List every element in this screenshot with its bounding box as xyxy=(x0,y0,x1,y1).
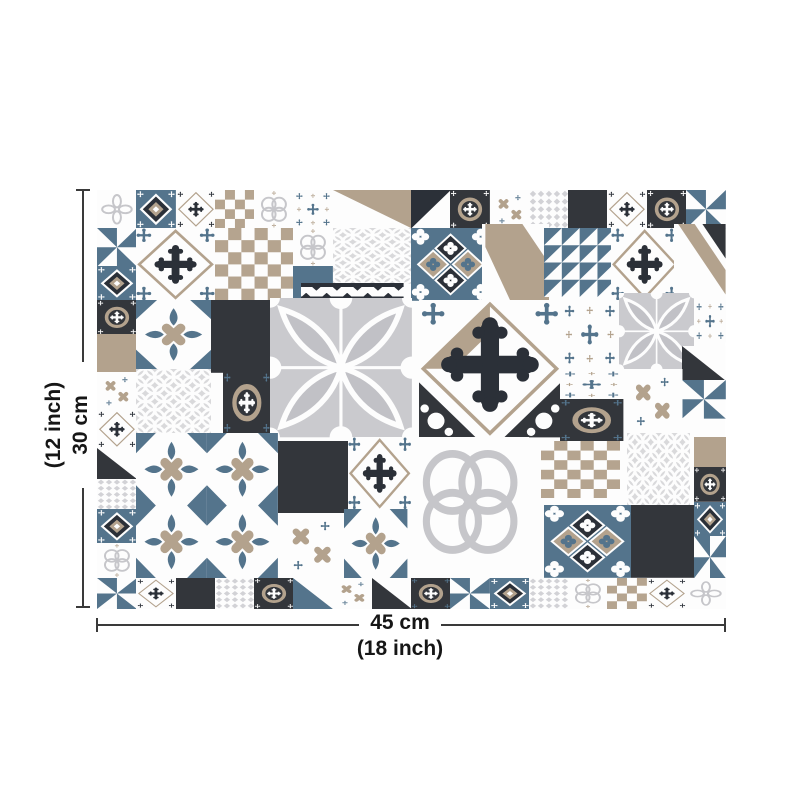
tile-pin_blue xyxy=(97,578,137,609)
tile-dnavy xyxy=(97,509,137,544)
height-label-cm: 30 cm xyxy=(69,365,93,485)
tile-dark xyxy=(568,190,608,229)
tile-ocircle2 xyxy=(560,399,623,441)
tile-tan_s xyxy=(97,334,137,373)
tile-ocircle xyxy=(694,467,726,502)
tile-dark xyxy=(211,300,271,373)
tile-xdiamond xyxy=(348,437,411,510)
width-dimension-tick-right xyxy=(724,618,726,632)
tile-tri_dark xyxy=(372,578,412,609)
tile-qring xyxy=(568,578,608,609)
tile-batons_w xyxy=(344,509,407,578)
tile-bluediamond xyxy=(411,228,490,301)
tile-tri_navy2 xyxy=(411,190,451,229)
tile-ocircle2 xyxy=(223,372,271,433)
tile-lattice2 xyxy=(136,369,211,434)
tile-pin_blue xyxy=(686,190,726,229)
tile-lattice xyxy=(529,190,569,229)
tile-qring xyxy=(293,228,333,267)
tile-tri_tan xyxy=(333,190,412,229)
width-dimension-line xyxy=(441,624,726,626)
tile-pin_blue xyxy=(97,228,137,267)
tile-crosses xyxy=(694,300,726,342)
tile-xdiamond_xl xyxy=(419,300,561,437)
tile-pin_blue xyxy=(450,578,490,609)
height-dimension-line xyxy=(82,488,84,608)
tile-tanband xyxy=(674,224,726,301)
tile-dark xyxy=(631,505,694,578)
tile-crosses xyxy=(560,369,623,400)
tile-tan_s xyxy=(694,437,726,468)
tile-checker_s xyxy=(607,578,647,609)
tile-xx xyxy=(97,372,137,411)
tile-navy_zigzag xyxy=(301,283,404,300)
tile-xcross xyxy=(647,578,687,609)
tile-crosses xyxy=(293,190,333,229)
tile-xcross xyxy=(176,190,216,229)
width-dimension-line xyxy=(97,624,359,626)
tile-dark xyxy=(278,441,349,514)
tile-dnavy xyxy=(136,190,176,229)
tile-lattice xyxy=(97,479,137,510)
tile-ocircle xyxy=(450,190,490,229)
width-label-inch: (18 inch) xyxy=(340,637,460,661)
width-dimension-tick-left xyxy=(96,618,98,632)
tile-batons4 xyxy=(136,433,278,578)
height-dimension-tick-top xyxy=(76,189,90,191)
tile-lattice xyxy=(215,578,255,609)
tile-bluediamond xyxy=(544,505,631,578)
tile-xx xyxy=(333,578,373,609)
tile-batons_w xyxy=(136,300,211,369)
height-dimension-tick-bottom xyxy=(76,606,90,608)
tile-ocircle2 xyxy=(411,578,451,609)
height-label-inch: (12 inch) xyxy=(42,365,66,485)
width-label-cm: 45 cm xyxy=(340,611,460,635)
tile-qring xyxy=(254,190,294,229)
tile-lattice2 xyxy=(333,228,412,284)
tile-xcross xyxy=(136,578,176,609)
tile-dnavy xyxy=(694,502,726,537)
tile-checker xyxy=(541,441,620,499)
tile-pin_blue4 xyxy=(544,228,615,297)
tile-pin_blue xyxy=(694,536,726,578)
tile-tri_dark xyxy=(97,448,137,479)
tile-xdiamond xyxy=(136,228,215,301)
tile-flower xyxy=(270,298,412,437)
tile-ocircle xyxy=(254,578,294,609)
product-dimension-diagram: (12 inch) 30 cm 45 cm (18 inch) xyxy=(0,0,800,800)
tile-lattice2 xyxy=(627,433,690,506)
tile-dark xyxy=(176,578,216,609)
tile-xx xyxy=(490,190,530,229)
tile-pin_blue xyxy=(682,380,726,419)
tile-dnavy xyxy=(490,578,530,609)
height-dimension-line xyxy=(82,190,84,362)
tile-xcross xyxy=(607,190,647,229)
tile-petals xyxy=(686,578,726,609)
tile-xx xyxy=(278,513,345,578)
tile-checker xyxy=(215,228,294,301)
tile-dnavy xyxy=(97,266,137,301)
tile-tri_navy xyxy=(293,578,333,609)
tile-xcross xyxy=(97,410,137,449)
tile-checker_s xyxy=(215,190,255,229)
tile-ocircle xyxy=(97,300,137,335)
tile-crosses xyxy=(560,300,620,369)
tile-sheet xyxy=(97,190,725,608)
tile-tanband2 xyxy=(482,224,549,301)
tile-petals xyxy=(97,190,137,229)
tile-xx xyxy=(623,369,683,434)
tile-tri_dark xyxy=(682,346,726,381)
tile-bigquatrefoil xyxy=(411,437,529,567)
tile-qring xyxy=(97,543,137,578)
tile-ocircle xyxy=(647,190,687,229)
tile-lattice xyxy=(529,578,569,609)
tile-xdiamond xyxy=(611,228,678,301)
